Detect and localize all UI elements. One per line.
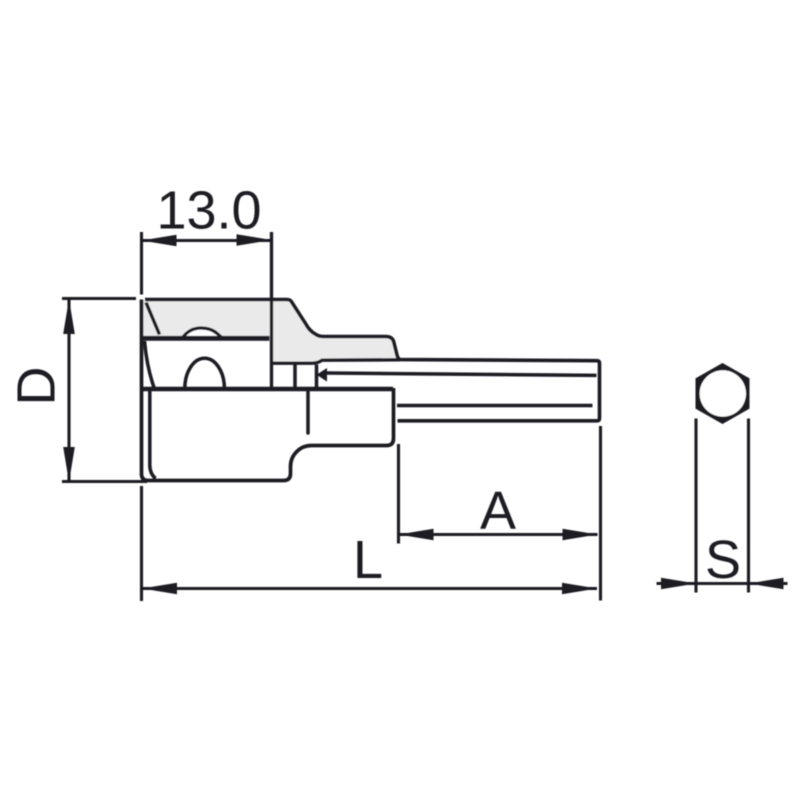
svg-text:S: S	[705, 530, 741, 590]
svg-text:D: D	[7, 367, 67, 406]
svg-text:L: L	[353, 530, 383, 590]
svg-text:13.0: 13.0	[156, 181, 261, 241]
svg-text:A: A	[480, 481, 516, 541]
